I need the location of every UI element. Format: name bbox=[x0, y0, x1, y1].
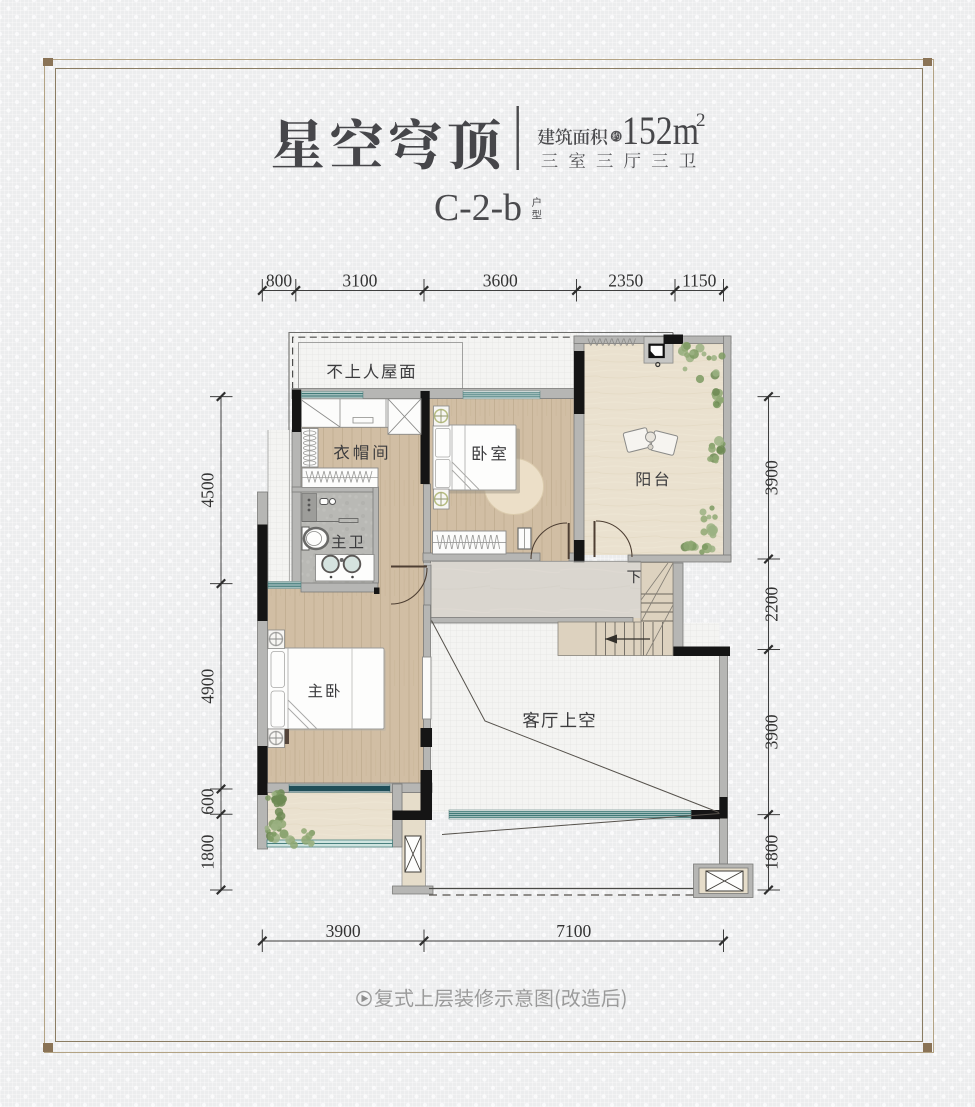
svg-text:3600: 3600 bbox=[483, 271, 518, 291]
svg-text:600: 600 bbox=[198, 788, 218, 815]
svg-text:3900: 3900 bbox=[762, 714, 782, 749]
svg-text:1800: 1800 bbox=[198, 834, 218, 869]
svg-text:3100: 3100 bbox=[342, 271, 377, 291]
svg-text:4500: 4500 bbox=[198, 472, 218, 507]
svg-text:1800: 1800 bbox=[762, 835, 782, 870]
svg-text:C-2-b: C-2-b bbox=[434, 187, 522, 229]
svg-text:3900: 3900 bbox=[326, 921, 361, 941]
svg-text:2: 2 bbox=[696, 110, 706, 131]
svg-text:7100: 7100 bbox=[556, 921, 591, 941]
svg-text:2350: 2350 bbox=[608, 271, 643, 291]
svg-text:4900: 4900 bbox=[198, 669, 218, 704]
svg-text:152m: 152m bbox=[622, 108, 699, 153]
svg-text:3900: 3900 bbox=[762, 460, 782, 495]
svg-text:1150: 1150 bbox=[682, 271, 717, 291]
svg-text:800: 800 bbox=[266, 271, 293, 291]
svg-text:2200: 2200 bbox=[762, 587, 782, 622]
